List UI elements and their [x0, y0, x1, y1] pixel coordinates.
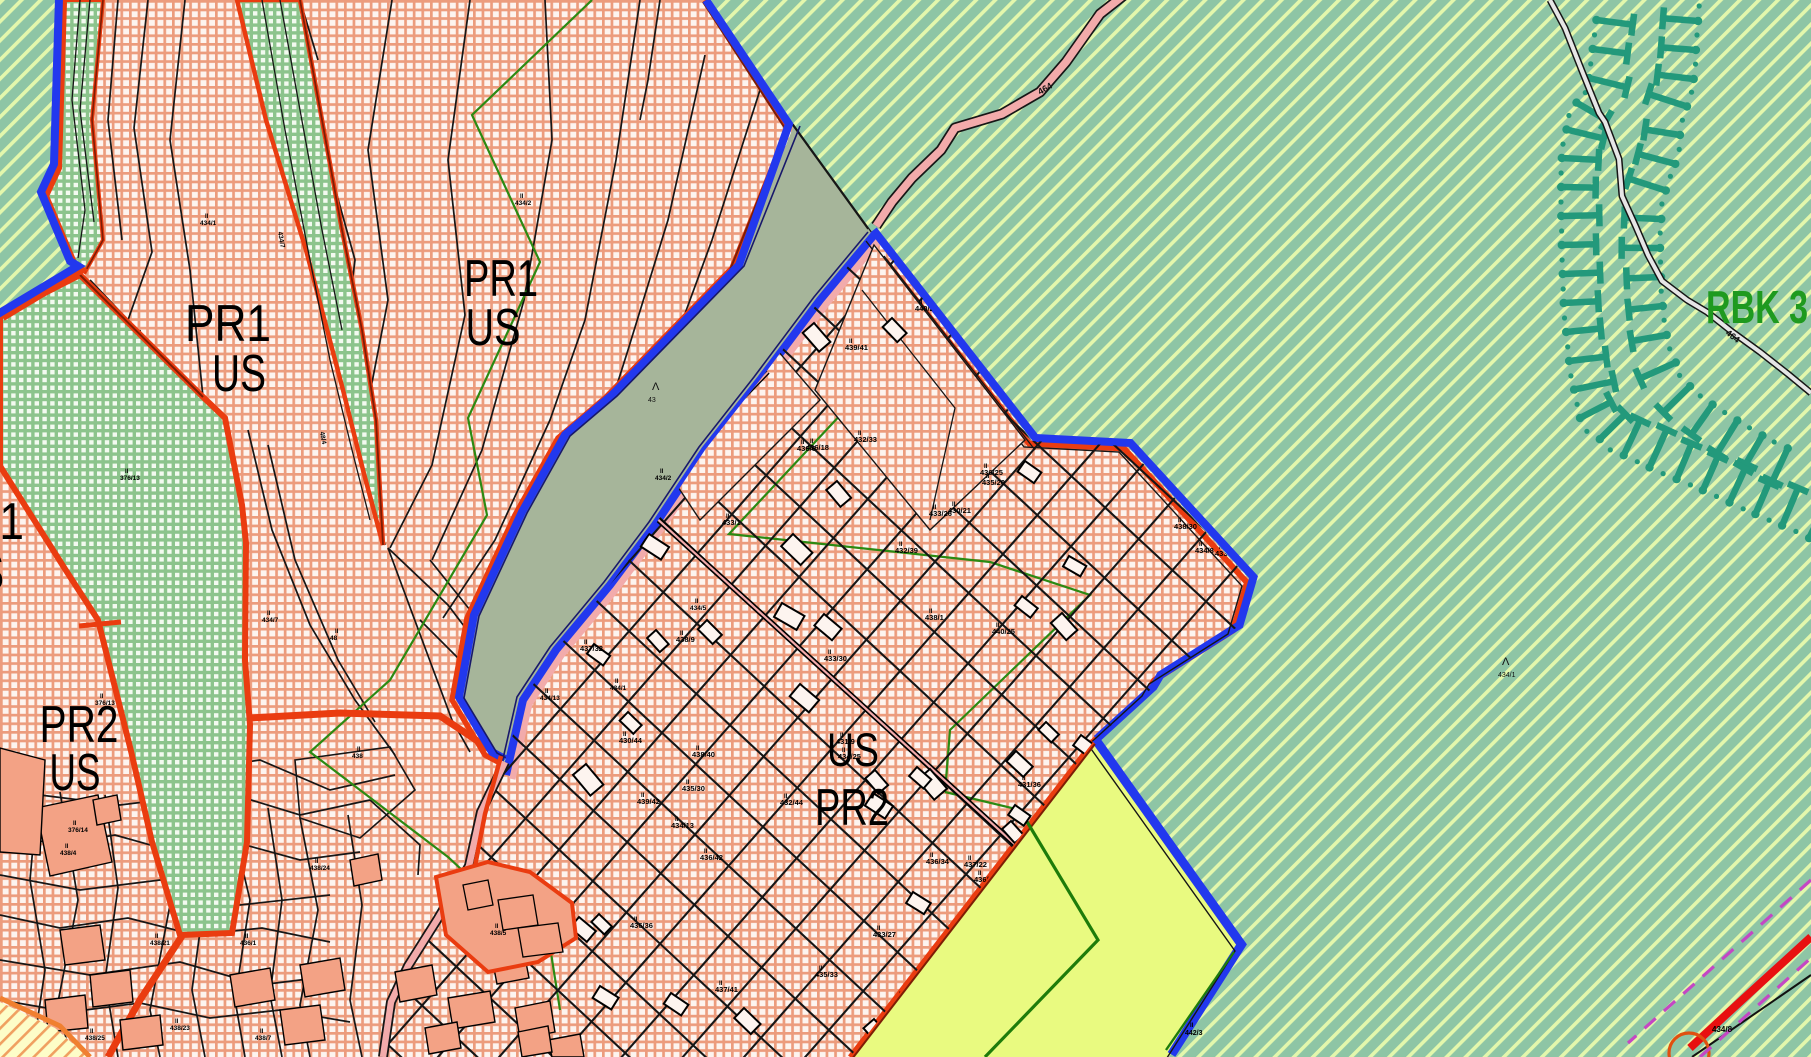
svg-text:II: II	[641, 793, 645, 799]
svg-text:II: II	[680, 631, 684, 637]
svg-text:II: II	[1022, 776, 1026, 782]
svg-text:II: II	[357, 747, 361, 753]
svg-text:II: II	[984, 464, 988, 470]
svg-text:II: II	[849, 339, 853, 345]
svg-text:Λ: Λ	[1502, 656, 1510, 668]
svg-text:434/8: 434/8	[1195, 546, 1214, 555]
svg-text:Λ: Λ	[652, 381, 660, 393]
svg-text:II: II	[919, 300, 923, 306]
svg-text:II: II	[858, 431, 862, 437]
svg-text:US: US	[466, 299, 521, 357]
svg-text:438/25: 438/25	[85, 1035, 105, 1042]
svg-text:438/7: 438/7	[255, 1035, 272, 1042]
svg-text:II: II	[828, 650, 832, 656]
svg-text:434/7: 434/7	[262, 617, 279, 624]
svg-text:II: II	[90, 1029, 94, 1035]
svg-text:436/1: 436/1	[240, 940, 257, 947]
svg-text:438/23: 438/23	[170, 1025, 190, 1032]
svg-text:48: 48	[330, 635, 338, 642]
svg-text:II: II	[930, 853, 934, 859]
svg-text:II: II	[634, 917, 638, 923]
svg-text:II: II	[155, 934, 159, 940]
svg-text:II: II	[695, 599, 699, 605]
svg-text:II: II	[899, 542, 903, 548]
svg-text:II: II	[615, 679, 619, 685]
svg-text:II: II	[978, 871, 982, 877]
svg-text:II: II	[675, 817, 679, 823]
svg-text:II: II	[623, 732, 627, 738]
svg-text:US: US	[212, 345, 266, 403]
svg-text:438/1: 438/1	[925, 613, 944, 622]
svg-text:434/2: 434/2	[655, 475, 672, 482]
svg-text:434/2: 434/2	[515, 200, 532, 207]
svg-text:II: II	[545, 689, 549, 695]
svg-text:II: II	[704, 849, 708, 855]
svg-text:II: II	[810, 439, 814, 445]
svg-text:II: II	[245, 934, 249, 940]
svg-text:RBK 3: RBK 3	[1706, 281, 1808, 333]
svg-text:II: II	[660, 469, 664, 475]
svg-text:II: II	[986, 474, 990, 480]
svg-text:II: II	[315, 859, 319, 865]
svg-text:438/21: 438/21	[150, 940, 170, 947]
svg-text:US: US	[827, 723, 879, 776]
svg-text:II: II	[719, 981, 723, 987]
svg-text:434/13: 434/13	[540, 695, 560, 702]
svg-text:II: II	[335, 629, 339, 635]
svg-text:II: II	[933, 505, 937, 511]
svg-text:II: II	[877, 926, 881, 932]
svg-text:442/3: 442/3	[1185, 1030, 1203, 1037]
svg-text:376/14: 376/14	[68, 827, 88, 834]
svg-text:II: II	[520, 194, 524, 200]
svg-text:II: II	[260, 1029, 264, 1035]
svg-text:438/4: 438/4	[60, 850, 77, 857]
svg-text:II: II	[686, 780, 690, 786]
svg-text:434/1: 434/1	[200, 220, 217, 227]
svg-text:434/1: 434/1	[1498, 672, 1516, 679]
svg-text:II: II	[696, 746, 700, 752]
svg-text:II: II	[819, 966, 823, 972]
svg-text:438/24: 438/24	[310, 865, 330, 872]
svg-text:II: II	[929, 609, 933, 615]
svg-text:43: 43	[648, 397, 656, 404]
svg-text:438: 438	[352, 753, 363, 760]
svg-text:II: II	[996, 623, 1000, 629]
svg-text:II: II	[267, 611, 271, 617]
svg-text:II: II	[968, 856, 972, 862]
svg-text:433/1: 433/1	[722, 518, 741, 527]
svg-text:II: II	[801, 440, 805, 446]
svg-text:II: II	[952, 502, 956, 508]
svg-text:II: II	[1178, 518, 1182, 524]
svg-text:438/5: 438/5	[490, 930, 507, 937]
svg-text:II: II	[175, 1019, 179, 1025]
svg-text:II: II	[584, 640, 588, 646]
svg-text:II: II	[1199, 542, 1203, 548]
svg-text:434/5: 434/5	[690, 605, 707, 612]
svg-text:II: II	[784, 794, 788, 800]
svg-text:PR1: PR1	[0, 493, 24, 551]
svg-text:II: II	[495, 924, 499, 930]
svg-text:438/9: 438/9	[676, 635, 695, 644]
svg-text:US: US	[0, 544, 4, 602]
svg-text:II: II	[65, 844, 69, 850]
svg-text:376/13: 376/13	[120, 475, 140, 482]
svg-text:434/8: 434/8	[1712, 1025, 1733, 1034]
svg-text:II: II	[726, 514, 730, 520]
svg-text:II: II	[73, 821, 77, 827]
svg-text:434/1: 434/1	[610, 685, 627, 692]
svg-text:II: II	[1190, 1023, 1194, 1029]
svg-text:II: II	[125, 469, 129, 475]
svg-text:II: II	[205, 214, 209, 220]
svg-text:US: US	[50, 744, 101, 802]
svg-text:PR2: PR2	[815, 779, 889, 837]
